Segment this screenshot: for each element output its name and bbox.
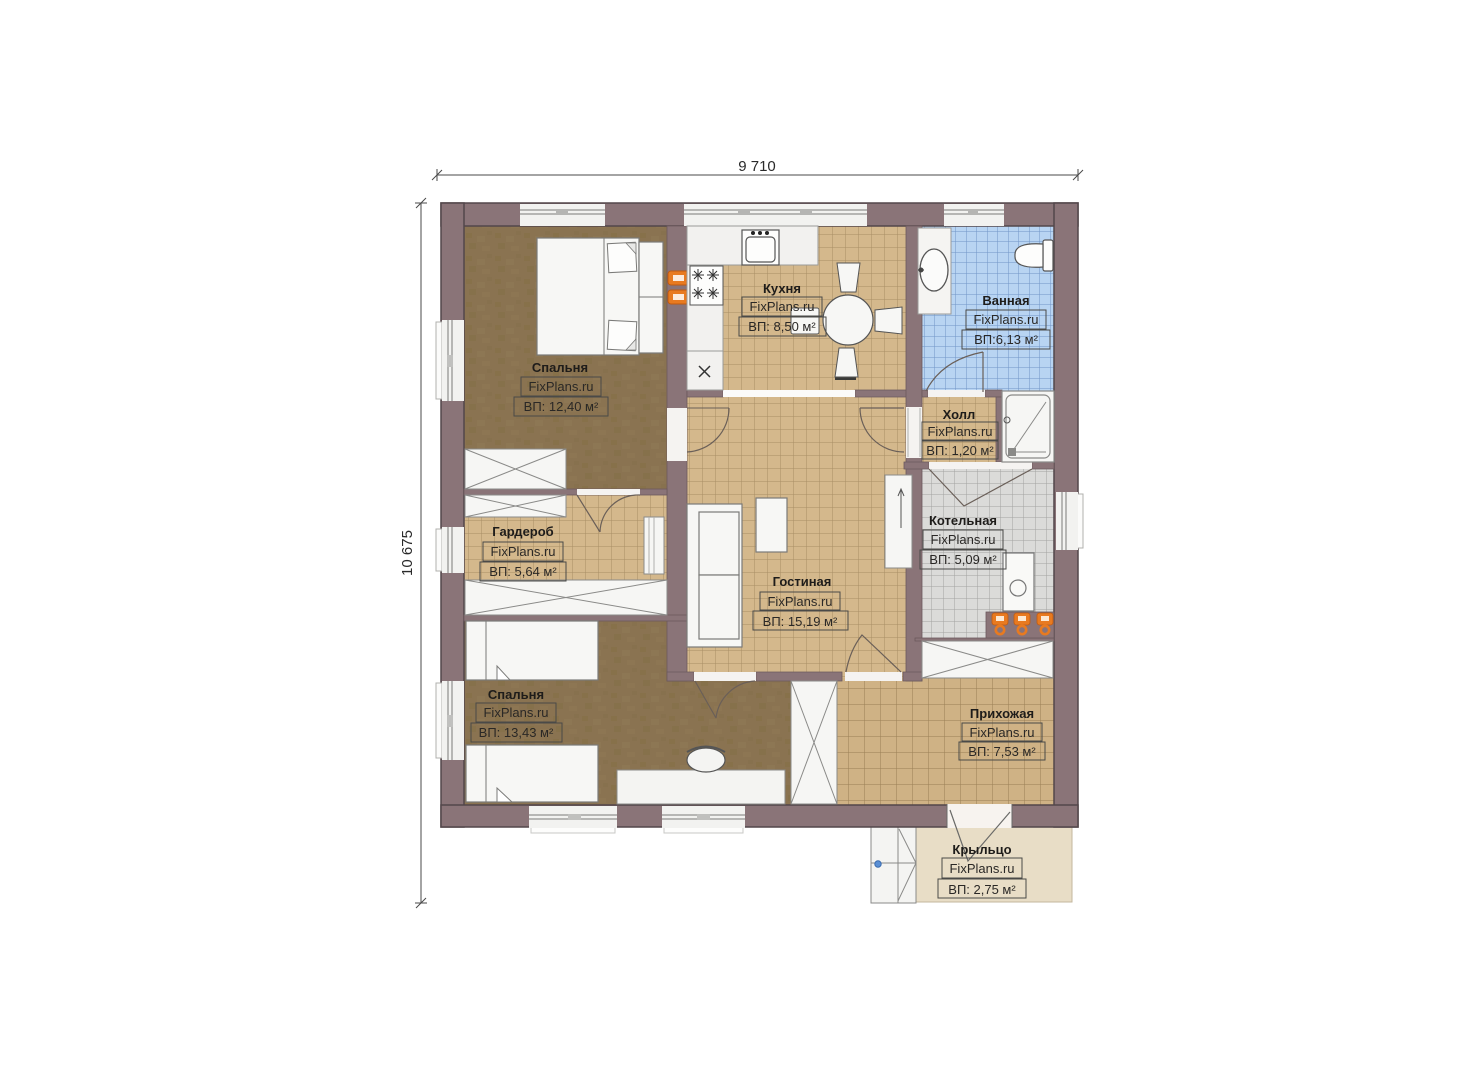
svg-text:ВП:6,13 м²: ВП:6,13 м² — [974, 332, 1038, 347]
svg-text:FixPlans.ru: FixPlans.ru — [528, 379, 593, 394]
svg-text:ВП: 5,09 м²: ВП: 5,09 м² — [929, 552, 997, 567]
svg-text:FixPlans.ru: FixPlans.ru — [949, 861, 1014, 876]
svg-text:Холл: Холл — [943, 407, 976, 422]
svg-text:ВП: 1,20 м²: ВП: 1,20 м² — [926, 443, 994, 458]
svg-text:Спальня: Спальня — [532, 360, 588, 375]
svg-text:FixPlans.ru: FixPlans.ru — [749, 299, 814, 314]
svg-text:10 675: 10 675 — [399, 530, 416, 576]
svg-text:Гардероб: Гардероб — [492, 524, 553, 539]
svg-text:FixPlans.ru: FixPlans.ru — [767, 594, 832, 609]
svg-text:ВП: 7,53 м²: ВП: 7,53 м² — [968, 744, 1036, 759]
svg-text:ВП: 12,40 м²: ВП: 12,40 м² — [524, 399, 599, 414]
svg-text:FixPlans.ru: FixPlans.ru — [483, 705, 548, 720]
svg-text:FixPlans.ru: FixPlans.ru — [490, 544, 555, 559]
svg-text:Котельная: Котельная — [929, 513, 997, 528]
svg-text:Ванная: Ванная — [982, 293, 1029, 308]
svg-text:ВП: 13,43 м²: ВП: 13,43 м² — [479, 725, 554, 740]
svg-text:Крыльцо: Крыльцо — [952, 842, 1011, 857]
svg-text:ВП: 15,19 м²: ВП: 15,19 м² — [763, 614, 838, 629]
svg-text:Гостиная: Гостиная — [773, 574, 832, 589]
svg-text:Прихожая: Прихожая — [970, 706, 1034, 721]
svg-text:ВП: 5,64 м²: ВП: 5,64 м² — [489, 564, 557, 579]
svg-text:ВП: 8,50 м²: ВП: 8,50 м² — [748, 319, 816, 334]
svg-text:ВП: 2,75 м²: ВП: 2,75 м² — [948, 882, 1016, 897]
svg-text:Спальня: Спальня — [488, 687, 544, 702]
svg-text:FixPlans.ru: FixPlans.ru — [969, 725, 1034, 740]
svg-text:FixPlans.ru: FixPlans.ru — [930, 532, 995, 547]
svg-text:Кухня: Кухня — [763, 281, 801, 296]
svg-text:FixPlans.ru: FixPlans.ru — [973, 312, 1038, 327]
svg-text:FixPlans.ru: FixPlans.ru — [927, 424, 992, 439]
svg-text:9 710: 9 710 — [738, 158, 776, 175]
